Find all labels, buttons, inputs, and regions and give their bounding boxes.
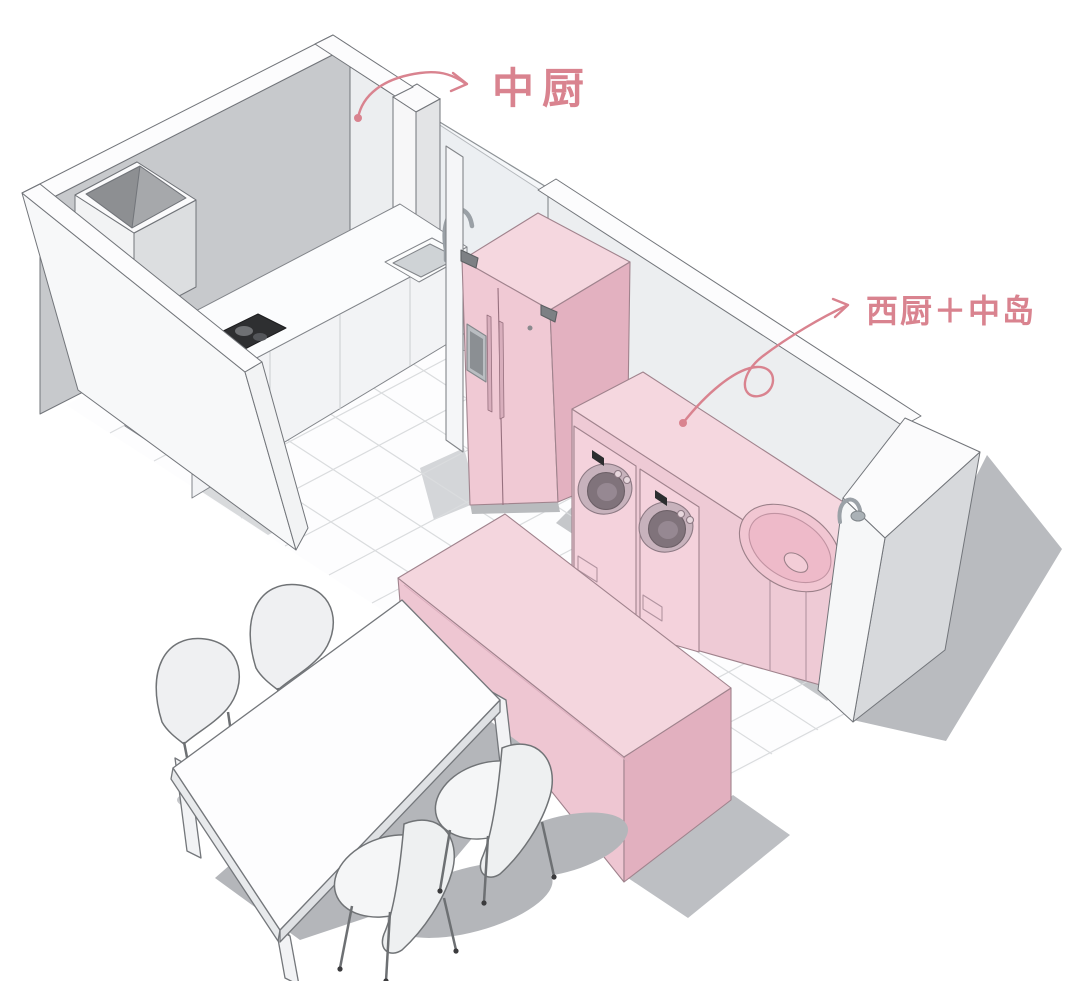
kitchen-plan-rendering: 中厨 西厨＋中岛 [0, 0, 1080, 981]
fridge-niche-wall-edge [446, 146, 463, 452]
fridge-handle-left [487, 315, 492, 412]
chair-foot [437, 888, 442, 893]
chair-foot [551, 874, 556, 879]
chair-foot [453, 948, 458, 953]
chair-foot [481, 900, 486, 905]
label-western-kitchen-island: 西厨＋中岛 [866, 292, 1036, 330]
fridge-logo [528, 326, 533, 331]
washer-dial [615, 471, 622, 478]
cooktop-burner [253, 333, 267, 341]
label-chinese-kitchen: 中厨 [492, 64, 592, 113]
basin-faucet-base [851, 511, 865, 521]
cooktop-burner [235, 326, 253, 336]
washer-dial [687, 517, 694, 524]
washer-door-glass [658, 521, 678, 539]
washer-dial [624, 477, 631, 484]
axonometric-scene: 中厨 西厨＋中岛 [0, 0, 1080, 981]
washer-door-glass [597, 483, 617, 501]
washer-dial [678, 511, 685, 518]
chair-foot [337, 966, 342, 971]
fridge-handle-right [499, 321, 504, 419]
